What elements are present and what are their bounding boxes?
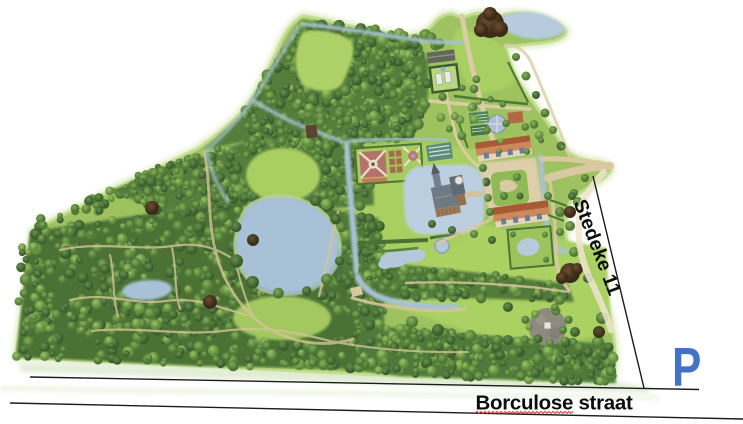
svg-text:P: P: [672, 336, 701, 398]
svg-text:Borculose straat: Borculose straat: [476, 392, 633, 415]
